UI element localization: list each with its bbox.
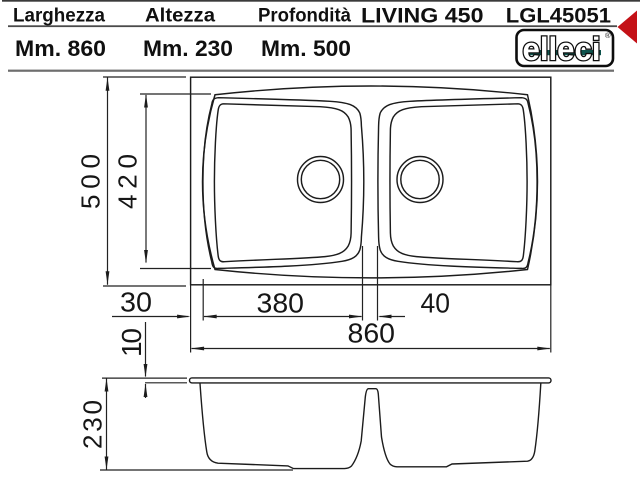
svg-text:30: 30 — [120, 287, 152, 318]
svg-text:40: 40 — [421, 288, 451, 319]
svg-text:420: 420 — [113, 154, 143, 209]
svg-text:Profondità: Profondità — [258, 6, 351, 27]
svg-text:®: ® — [605, 31, 611, 40]
svg-text:380: 380 — [257, 288, 305, 319]
svg-text:860: 860 — [348, 318, 396, 349]
svg-text:Larghezza: Larghezza — [13, 6, 105, 27]
svg-text:Mm. 230: Mm. 230 — [143, 36, 233, 61]
svg-text:230: 230 — [78, 400, 108, 449]
svg-text:Altezza: Altezza — [145, 6, 215, 27]
svg-text:elleci: elleci — [523, 31, 601, 67]
svg-text:500: 500 — [76, 154, 106, 209]
svg-text:LIVING 450: LIVING 450 — [361, 4, 484, 27]
svg-text:LGL45051: LGL45051 — [506, 3, 611, 27]
svg-text:Mm. 860: Mm. 860 — [15, 36, 106, 61]
svg-text:10: 10 — [116, 328, 147, 357]
svg-text:Mm. 500: Mm. 500 — [261, 36, 351, 61]
